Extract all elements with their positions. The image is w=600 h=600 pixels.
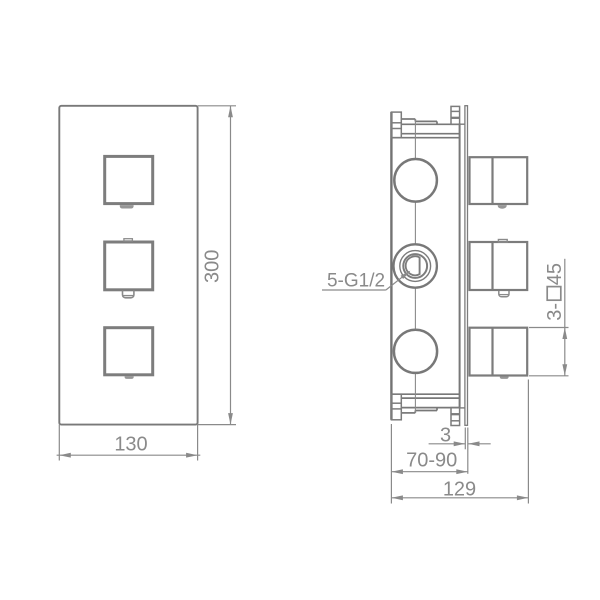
svg-text:3-: 3- <box>544 303 566 321</box>
svg-text:70-90: 70-90 <box>406 449 457 471</box>
svg-text:130: 130 <box>114 434 147 456</box>
svg-text:300: 300 <box>202 250 224 283</box>
svg-text:5-G1/2: 5-G1/2 <box>327 270 385 291</box>
svg-text:45: 45 <box>544 263 566 285</box>
